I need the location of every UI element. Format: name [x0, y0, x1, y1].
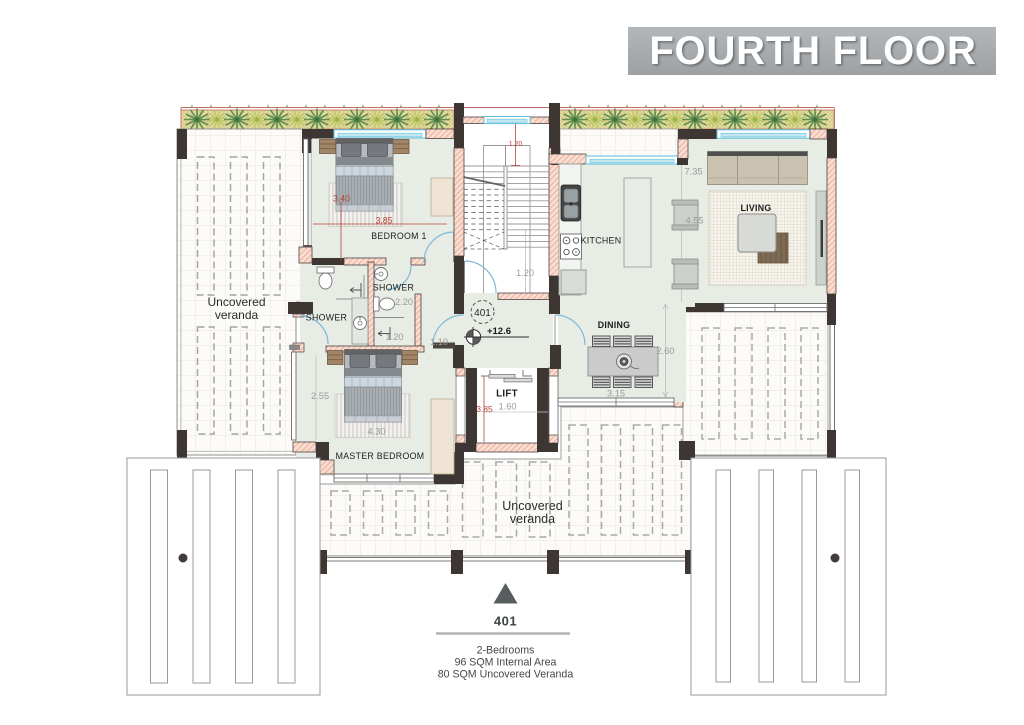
svg-text:4.30: 4.30 — [367, 427, 385, 437]
svg-text:2-Bedrooms: 2-Bedrooms — [477, 645, 535, 657]
svg-text:KITCHEN: KITCHEN — [581, 236, 622, 246]
svg-text:+12.6: +12.6 — [487, 326, 511, 337]
svg-text:2.60: 2.60 — [656, 346, 674, 356]
svg-text:veranda: veranda — [215, 308, 259, 322]
svg-text:1.10: 1.10 — [430, 337, 448, 347]
svg-text:4.55: 4.55 — [685, 216, 703, 226]
svg-text:DINING: DINING — [598, 320, 631, 330]
svg-text:BEDROOM 1: BEDROOM 1 — [371, 231, 427, 241]
svg-text:3.40: 3.40 — [333, 194, 350, 204]
svg-text:1.20: 1.20 — [516, 268, 534, 278]
svg-text:MASTER BEDROOM: MASTER BEDROOM — [336, 451, 425, 461]
svg-text:96 SQM Internal Area: 96 SQM Internal Area — [455, 657, 557, 669]
svg-text:Uncovered: Uncovered — [502, 499, 562, 513]
svg-text:Uncovered: Uncovered — [207, 295, 265, 309]
svg-text:401: 401 — [474, 308, 491, 319]
svg-text:401: 401 — [494, 614, 517, 629]
svg-text:3.85: 3.85 — [476, 404, 493, 414]
svg-text:LIFT: LIFT — [496, 389, 518, 400]
svg-text:2.20: 2.20 — [395, 297, 413, 307]
svg-text:3.85: 3.85 — [375, 216, 392, 226]
svg-text:1.20: 1.20 — [509, 141, 523, 148]
svg-text:3.15: 3.15 — [607, 389, 625, 399]
svg-text:LIVING: LIVING — [740, 203, 771, 213]
svg-text:SHOWER: SHOWER — [306, 313, 347, 323]
svg-text:SHOWER: SHOWER — [373, 283, 414, 293]
svg-text:7.35: 7.35 — [684, 167, 702, 177]
svg-text:80 SQM Uncovered Veranda: 80 SQM Uncovered Veranda — [438, 669, 574, 681]
svg-text:1.20: 1.20 — [385, 332, 403, 342]
svg-text:FOURTH FLOOR: FOURTH FLOOR — [649, 29, 976, 73]
svg-text:1.60: 1.60 — [498, 402, 516, 412]
svg-text:veranda: veranda — [510, 512, 555, 526]
svg-text:2.55: 2.55 — [311, 391, 329, 401]
